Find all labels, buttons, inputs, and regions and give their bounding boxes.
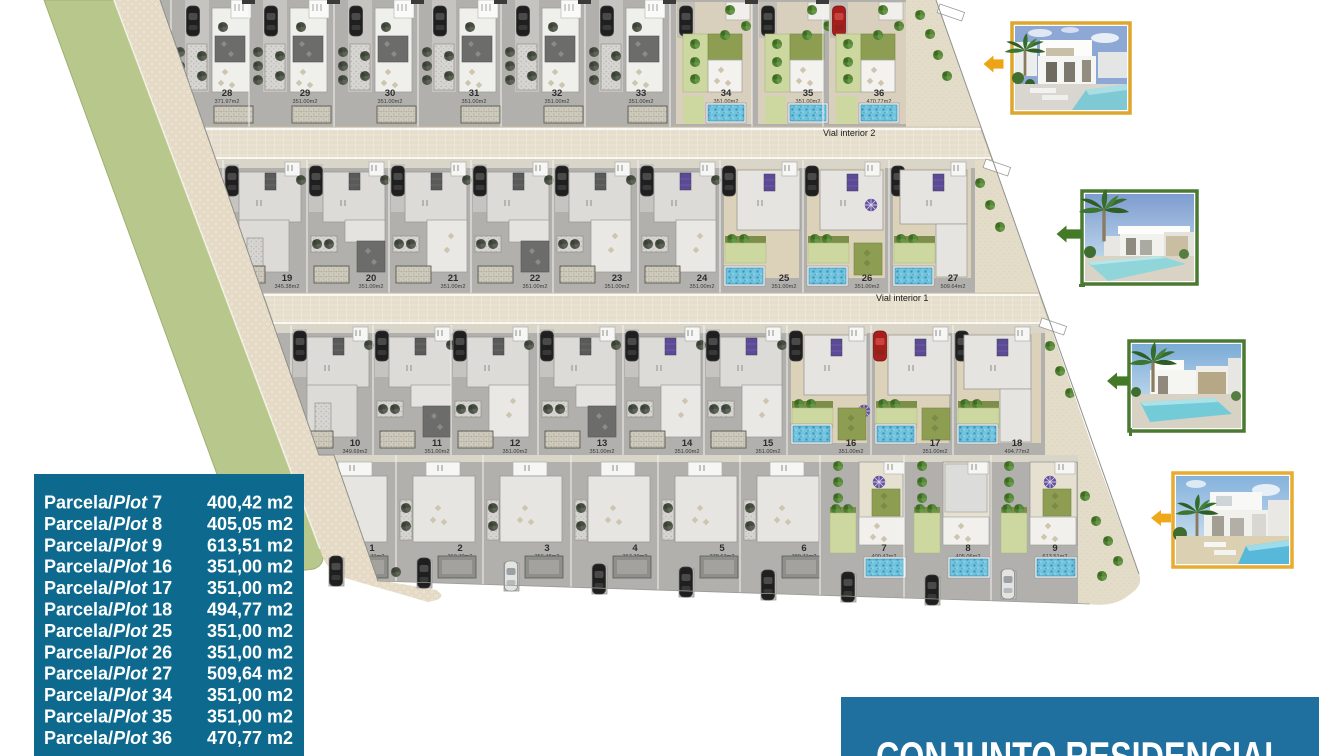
svg-text:509.64m2: 509.64m2 [941,284,966,290]
svg-text:35: 35 [803,88,814,99]
svg-text:Parcela/Plot 18: Parcela/Plot 18 [44,600,172,620]
svg-text:Parcela/Plot 27: Parcela/Plot 27 [44,664,172,684]
svg-text:21: 21 [448,273,459,284]
svg-text:351.00m2: 351.00m2 [425,449,450,455]
svg-text:Parcela/Plot 16: Parcela/Plot 16 [44,557,172,577]
svg-text:23: 23 [612,273,623,284]
svg-text:351,00 m2: 351,00 m2 [207,642,293,662]
svg-text:351,00 m2: 351,00 m2 [207,685,293,705]
svg-text:345.38m2: 345.38m2 [275,284,300,290]
svg-text:351,00 m2: 351,00 m2 [207,621,293,641]
svg-text:494,77 m2: 494,77 m2 [207,600,293,620]
svg-text:494.77m2: 494.77m2 [1005,449,1030,455]
svg-text:5: 5 [719,543,725,554]
svg-text:351,00 m2: 351,00 m2 [207,557,293,577]
svg-text:351.00m2: 351.00m2 [293,99,318,105]
svg-text:Parcela/Plot 34: Parcela/Plot 34 [44,685,172,705]
svg-text:36: 36 [874,88,885,99]
svg-text:351.00m2: 351.00m2 [629,99,654,105]
svg-text:25: 25 [779,273,790,284]
svg-text:400,42 m2: 400,42 m2 [207,493,293,513]
svg-text:351.00m2: 351.00m2 [441,284,466,290]
svg-text:11: 11 [432,438,443,449]
svg-text:351.00m2: 351.00m2 [359,284,384,290]
svg-text:351.00m2: 351.00m2 [690,284,715,290]
svg-text:8: 8 [965,543,970,554]
svg-text:34: 34 [721,88,732,99]
svg-text:Parcela/Plot 9: Parcela/Plot 9 [44,535,162,555]
svg-text:16: 16 [846,438,857,449]
svg-text:351.00m2: 351.00m2 [523,284,548,290]
svg-text:22: 22 [530,273,541,284]
svg-text:20: 20 [366,273,377,284]
svg-text:15: 15 [763,438,774,449]
svg-text:1: 1 [369,543,375,554]
svg-text:349.69m2: 349.69m2 [343,449,368,455]
svg-text:351.00m2: 351.00m2 [772,284,797,290]
svg-text:CONJUNTO RESIDENCIAL: CONJUNTO RESIDENCIAL [876,733,1284,756]
svg-text:12: 12 [510,438,521,449]
svg-text:10: 10 [350,438,361,449]
svg-text:9: 9 [1052,543,1057,554]
svg-text:29: 29 [300,88,311,99]
svg-text:30: 30 [385,88,396,99]
svg-text:19: 19 [282,273,293,284]
svg-text:17: 17 [930,438,941,449]
svg-text:6: 6 [801,543,806,554]
svg-text:18: 18 [1012,438,1023,449]
svg-text:7: 7 [881,543,886,554]
svg-text:351.00m2: 351.00m2 [590,449,615,455]
svg-text:14: 14 [682,438,693,449]
svg-text:Parcela/Plot 25: Parcela/Plot 25 [44,621,172,641]
svg-text:371.97m2: 371.97m2 [215,99,240,105]
svg-text:28: 28 [222,88,233,99]
svg-text:351.00m2: 351.00m2 [923,449,948,455]
svg-text:Vial interior 2: Vial interior 2 [823,128,875,138]
svg-text:351,00 m2: 351,00 m2 [207,707,293,727]
svg-text:31: 31 [469,88,480,99]
svg-text:Parcela/Plot 35: Parcela/Plot 35 [44,707,172,727]
svg-text:26: 26 [862,273,873,284]
svg-text:4: 4 [632,543,638,554]
svg-text:2: 2 [457,543,462,554]
svg-text:33: 33 [636,88,647,99]
svg-text:351.00m2: 351.00m2 [756,449,781,455]
svg-text:351,00 m2: 351,00 m2 [207,578,293,598]
svg-text:Parcela/Plot 36: Parcela/Plot 36 [44,728,172,748]
svg-text:405,05 m2: 405,05 m2 [207,514,293,534]
svg-text:351.00m2: 351.00m2 [545,99,570,105]
svg-text:470,77 m2: 470,77 m2 [207,728,293,748]
svg-text:24: 24 [697,273,708,284]
svg-text:351.00m2: 351.00m2 [855,284,880,290]
svg-text:351.00m2: 351.00m2 [503,449,528,455]
svg-text:351.00m2: 351.00m2 [605,284,630,290]
svg-text:351.00m2: 351.00m2 [839,449,864,455]
svg-text:Vial interior 1: Vial interior 1 [876,293,928,303]
svg-text:Parcela/Plot 17: Parcela/Plot 17 [44,578,172,598]
svg-text:Parcela/Plot 7: Parcela/Plot 7 [44,493,162,513]
svg-text:Parcela/Plot 8: Parcela/Plot 8 [44,514,162,534]
svg-text:351.00m2: 351.00m2 [462,99,487,105]
svg-text:3: 3 [544,543,549,554]
svg-text:509,64 m2: 509,64 m2 [207,664,293,684]
svg-text:32: 32 [552,88,563,99]
svg-text:13: 13 [597,438,608,449]
svg-text:27: 27 [948,273,959,284]
svg-text:Parcela/Plot 26: Parcela/Plot 26 [44,642,172,662]
svg-text:351.00m2: 351.00m2 [675,449,700,455]
svg-text:351.00m2: 351.00m2 [378,99,403,105]
svg-text:613,51 m2: 613,51 m2 [207,535,293,555]
